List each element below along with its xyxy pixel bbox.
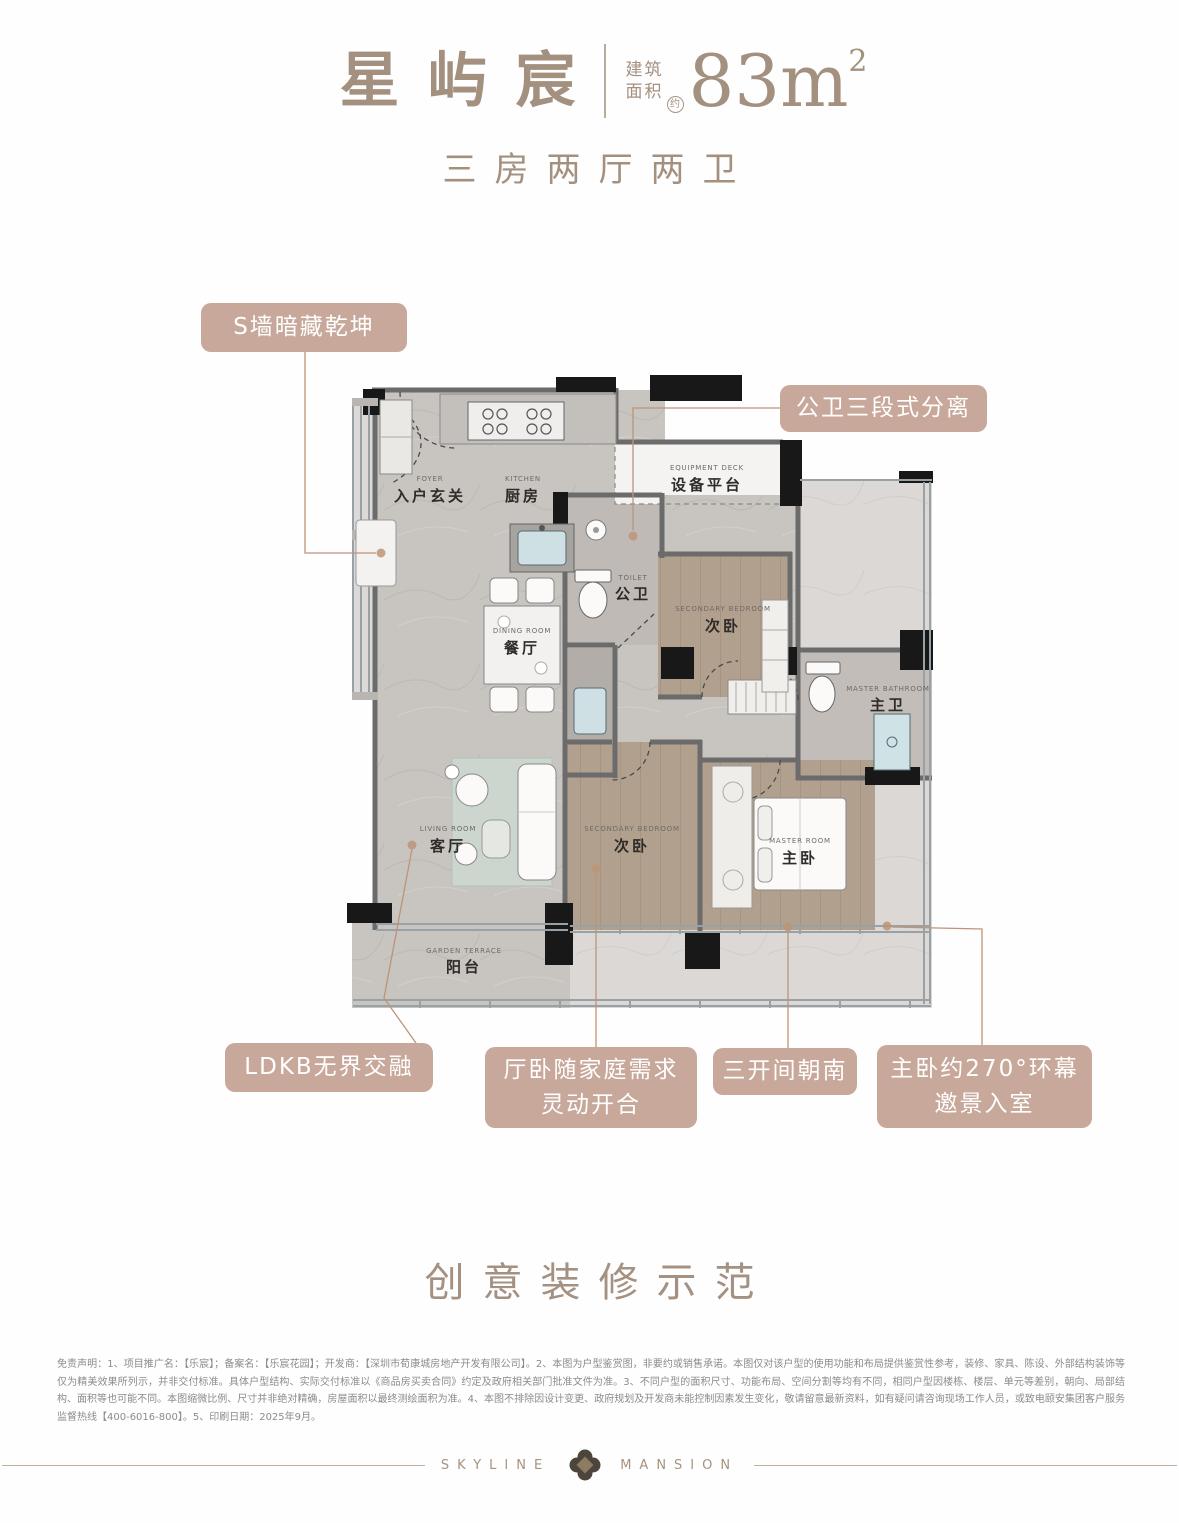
brand-skyline: SKYLINE xyxy=(441,1458,550,1473)
disclaimer-text: 免责声明：1、项目推广名：【乐宸】；备案名：【乐宸花园】；开发商：【深圳市荀康城… xyxy=(57,1356,1125,1426)
callout-master-view: 主卧约270°环幕 邀景入室 xyxy=(877,1045,1092,1128)
footer-rule-right xyxy=(754,1465,1177,1466)
brand-mansion: MANSION xyxy=(620,1458,738,1473)
floorplan-poster: 星屿宸 建筑 面积 约 83m 2 三房两厅两卫 xyxy=(0,0,1179,1523)
room-label-equipment-en: EQUIPMENT DECK xyxy=(670,464,744,472)
room-label-master: 主卧 xyxy=(782,849,818,867)
callout-flex-line2: 灵动开合 xyxy=(541,1088,641,1123)
tagline: 创意装修示范 xyxy=(0,1250,1179,1308)
room-label-foyer: 入户玄关 xyxy=(394,487,466,505)
room-label-dining: 餐厅 xyxy=(504,639,540,657)
kitchen-island-sink xyxy=(510,524,574,572)
footer-rule-left xyxy=(2,1465,425,1466)
room-label-balcony-en: GARDEN TERRACE xyxy=(426,947,502,955)
room-label-bedroom2: 次卧 xyxy=(614,837,650,855)
callout-ldkb: LDKB无界交融 xyxy=(225,1043,433,1092)
footer: SKYLINE MANSION xyxy=(0,1448,1179,1482)
room-label-public-toilet-en: TOILET xyxy=(617,574,647,582)
callout-ldkb-label: LDKB无界交融 xyxy=(244,1050,413,1085)
room-label-bedroom1: 次卧 xyxy=(705,617,741,635)
callout-master-line2: 邀景入室 xyxy=(935,1087,1035,1122)
room-label-master-bath-en: MASTER BATHROOM xyxy=(846,685,930,693)
room-label-kitchen: 厨房 xyxy=(505,487,541,505)
callout-master-line1: 主卧约270°环幕 xyxy=(890,1052,1078,1087)
room-label-master-bath: 主卫 xyxy=(870,696,906,714)
room-label-balcony: 阳台 xyxy=(446,958,482,976)
room-label-equipment: 设备平台 xyxy=(671,476,743,494)
callout-s-wall-label: S墙暗藏乾坤 xyxy=(233,310,375,345)
room-label-bedroom2-en: SECONDARY BEDROOM xyxy=(584,825,680,833)
callout-south-facing: 三开间朝南 xyxy=(713,1048,857,1095)
room-label-living-en: LIVING ROOM xyxy=(420,825,476,833)
callout-south-label: 三开间朝南 xyxy=(723,1054,848,1089)
callout-s-wall: S墙暗藏乾坤 xyxy=(201,303,407,352)
quatrefoil-logo-icon xyxy=(568,1448,602,1482)
room-label-public-toilet: 公卫 xyxy=(615,585,651,603)
room-label-bedroom1-en: SECONDARY BEDROOM xyxy=(675,605,771,613)
room-label-living: 客厅 xyxy=(429,837,466,855)
room-label-foyer-en: FOYER xyxy=(417,475,444,483)
callout-flex-space: 厅卧随家庭需求 灵动开合 xyxy=(485,1047,697,1128)
living-room-set xyxy=(445,758,556,886)
callout-public-bath: 公卫三段式分离 xyxy=(780,385,987,432)
callout-public-bath-label: 公卫三段式分离 xyxy=(796,391,971,426)
room-label-dining-en: DINING ROOM xyxy=(493,627,551,635)
room-label-kitchen-en: KITCHEN xyxy=(505,475,541,483)
room-label-master-en: MASTER ROOM xyxy=(769,837,831,845)
callout-flex-line1: 厅卧随家庭需求 xyxy=(504,1053,679,1088)
